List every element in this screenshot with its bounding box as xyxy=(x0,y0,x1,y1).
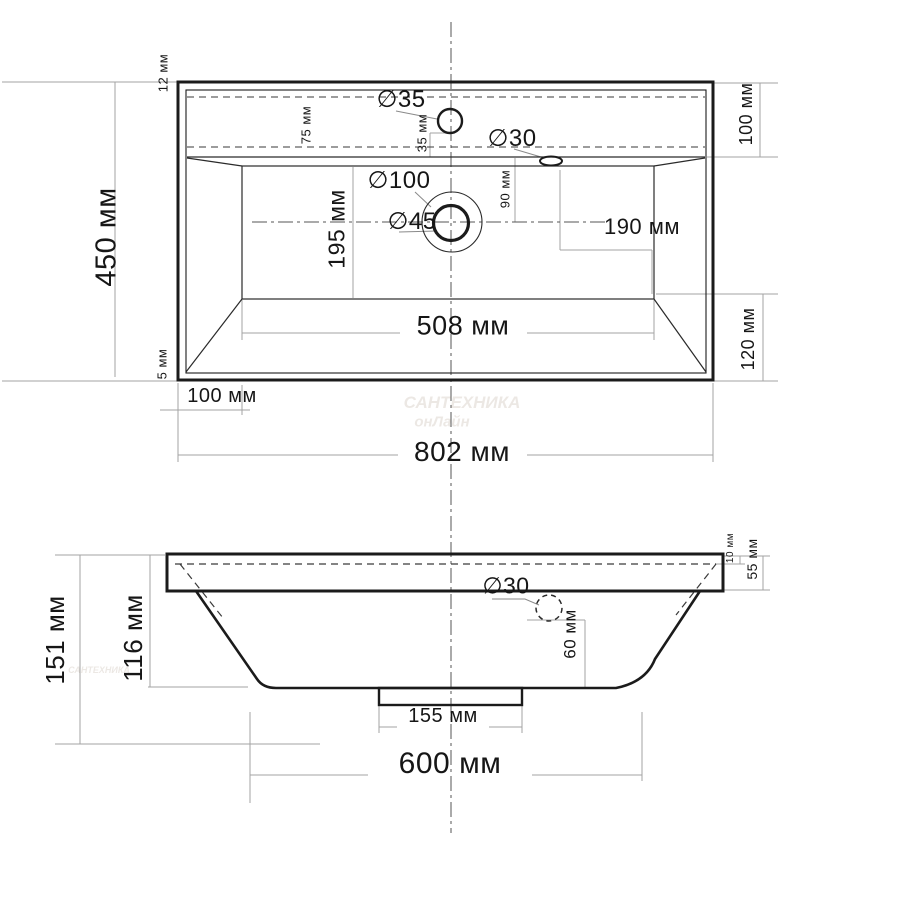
dim-overflow-side: 190 мм xyxy=(604,216,680,238)
dim-front-edge: 5 мм xyxy=(156,349,169,380)
dim-side-inset: 100 мм xyxy=(187,386,256,406)
dia-overflow: ∅30 xyxy=(487,127,536,151)
sink-technical-drawing: 12 мм 450 мм 5 мм ∅35 75 мм 35 мм ∅30 10… xyxy=(0,0,900,900)
dim-back-offset: 75 мм xyxy=(300,106,313,144)
watermark-line1: САНТЕХНИКА xyxy=(404,393,521,413)
dim-top-lip: 10 мм xyxy=(726,533,736,563)
overflow-hole-ellipse xyxy=(540,157,562,166)
dim-rim-height: 55 мм xyxy=(745,538,759,579)
dim-overflow-front: 90 мм xyxy=(499,170,512,208)
dia-drain-recess: ∅100 xyxy=(368,169,431,193)
dim-overall-depth: 450 мм xyxy=(93,187,122,286)
dim-overall-height: 151 мм xyxy=(42,595,68,684)
watermark-line2: онЛайн xyxy=(414,414,469,431)
dia-drain: ∅45 xyxy=(387,210,436,234)
dim-faucet-offset: 35 мм xyxy=(416,114,429,152)
dim-bowl-depth: 195 мм xyxy=(326,189,349,268)
side-view-rim xyxy=(167,554,723,591)
dia-faucet-hole: ∅35 xyxy=(376,88,425,112)
side-view-bowl-profile xyxy=(196,591,700,688)
dim-bowl-width: 508 мм xyxy=(417,313,510,340)
dia-overflow-side: ∅30 xyxy=(482,575,529,598)
dim-shelf-depth: 100 мм xyxy=(737,83,755,146)
side-view-overflow-circle xyxy=(536,595,562,621)
dim-drain-base-width: 155 мм xyxy=(408,706,477,726)
dim-overflow-height: 60 мм xyxy=(562,609,579,659)
dim-bottom-width: 600 мм xyxy=(399,749,502,779)
watermark-small: САНТЕХНИКА xyxy=(68,665,130,675)
dim-front-section: 120 мм xyxy=(739,308,757,371)
top-view-hidden-edges xyxy=(187,97,705,147)
faucet-hole-circle xyxy=(438,109,462,133)
dim-overall-width: 802 мм xyxy=(414,438,510,466)
dim-edge-thickness: 12 мм xyxy=(157,54,170,92)
